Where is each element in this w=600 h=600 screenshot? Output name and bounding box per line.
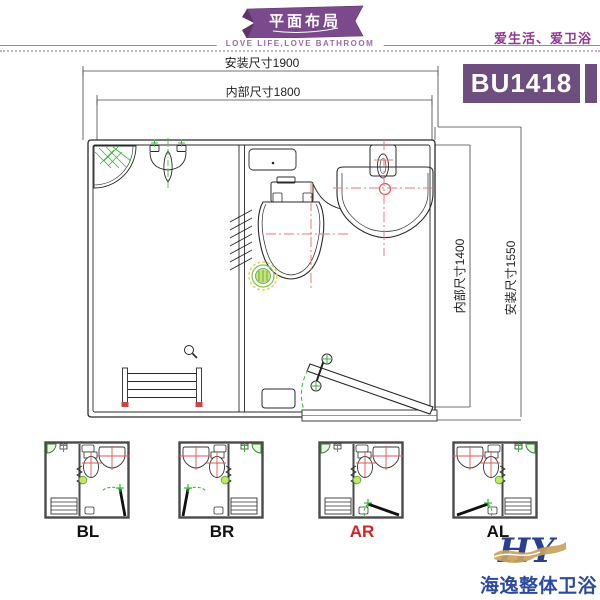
dim-right-outer: 安装尺寸1550	[503, 240, 518, 315]
storage-box	[262, 389, 295, 408]
variant-label-BL: BL	[77, 522, 100, 541]
spring-symbol	[230, 210, 252, 270]
dim-top-inner: 内部尺寸1800	[226, 84, 301, 99]
hook	[185, 346, 198, 359]
dim-right-inner: 内部尺寸1400	[452, 238, 467, 313]
floor-drain	[249, 262, 277, 290]
variant-thumbnail-AL[interactable]	[453, 443, 537, 519]
floor-plan-canvas: 安装尺寸1900 内部尺寸1800 内部尺寸1400 安装尺寸1550	[0, 0, 600, 600]
variant-thumbnail-BL[interactable]	[46, 443, 130, 518]
ribbon-subtitle: LOVE LIFE,LOVE BATHROOM	[217, 38, 384, 50]
cistern-shelf	[249, 149, 296, 170]
dim-top-outer: 安装尺寸1900	[225, 55, 300, 70]
variant-label-AR: AR	[350, 522, 375, 541]
variant-thumbnail-BR[interactable]	[179, 443, 263, 518]
corner-shelf	[94, 146, 136, 188]
urinal	[150, 138, 186, 188]
variant-thumbnail-AR[interactable]	[320, 443, 404, 519]
shower-room	[94, 138, 252, 407]
towel-rack	[122, 368, 203, 407]
brand-logo: HY	[490, 531, 570, 571]
toilet-room	[249, 140, 437, 421]
brand-name: 海逸整体卫浴	[450, 571, 597, 598]
faucet	[370, 145, 396, 178]
toilet	[258, 177, 348, 288]
variant-label-BR: BR	[210, 522, 235, 541]
door	[301, 354, 433, 414]
threshold	[302, 410, 437, 421]
washbasin	[333, 140, 436, 256]
